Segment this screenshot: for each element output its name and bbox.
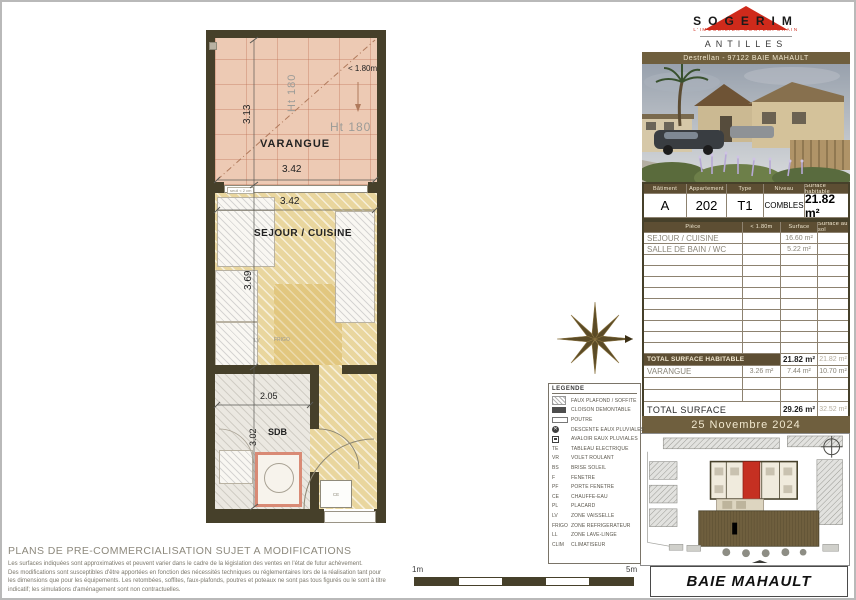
sejour-width-dim: 3.42 bbox=[280, 196, 299, 207]
legend-item: VRVOLET ROULANT bbox=[552, 454, 637, 464]
sdb-height-dim: 3.02 bbox=[248, 428, 258, 446]
empty-row bbox=[644, 266, 848, 277]
empty-row bbox=[644, 378, 848, 390]
downpipe-symbol-icon: ✕ bbox=[552, 426, 571, 433]
varangue-row: VARANGUE 3.26 m² 7.44 m² 10.70 m² bbox=[644, 366, 848, 378]
legend-item: CECHAUFFE-EAU bbox=[552, 492, 637, 502]
legend-item: AVALOIR EAUX PLUVIALES bbox=[552, 434, 637, 444]
unit-info-table: Bâtiment Appartement Type Niveau Surface… bbox=[642, 182, 850, 220]
hatch-symbol-icon bbox=[552, 396, 571, 405]
info-header-niveau: Niveau bbox=[764, 184, 805, 194]
site-plan-image bbox=[640, 433, 850, 566]
info-header-batiment: Bâtiment bbox=[644, 184, 687, 194]
rooms-header-lt180: < 1.80m bbox=[743, 222, 781, 233]
info-batiment: A bbox=[644, 194, 687, 218]
project-rendering-image bbox=[642, 64, 850, 182]
logo-region: ANTILLES bbox=[642, 39, 850, 49]
legend-title: LEGENDE bbox=[552, 386, 637, 394]
empty-row bbox=[644, 255, 848, 266]
empty-row bbox=[644, 321, 848, 332]
disclaimer-title: PLANS DE PRE-COMMERCIALISATION SUJET A M… bbox=[8, 545, 408, 557]
legend-item: FRIGOZONE REFRIGERATEUR bbox=[552, 521, 637, 531]
legend-item: PFPORTE FENETRE bbox=[552, 482, 637, 492]
frigo-zone-label: FRIGO bbox=[274, 337, 290, 343]
info-header-appartement: Appartement bbox=[687, 184, 727, 194]
varangue-height-dim: 3.13 bbox=[242, 105, 253, 124]
legend-item: LVZONE VAISSELLE bbox=[552, 511, 637, 521]
logo: SOGERIM L'IMMOBILIER CONTEMPORAIN ANTILL… bbox=[642, 4, 850, 52]
city-title: BAIE MAHAULT bbox=[650, 566, 848, 597]
empty-row bbox=[644, 390, 848, 402]
beam-symbol-icon bbox=[552, 417, 571, 423]
empty-row bbox=[644, 343, 848, 354]
scale-bar bbox=[414, 577, 634, 586]
legend-item: ✕DESCENTE EAUX PLUVIALES bbox=[552, 425, 637, 435]
info-niveau: COMBLES bbox=[764, 194, 805, 218]
empty-row bbox=[644, 277, 848, 288]
legend-item: FAUX PLAFOND / SOFFITE bbox=[552, 396, 637, 406]
disclaimer: PLANS DE PRE-COMMERCIALISATION SUJET A M… bbox=[8, 545, 408, 594]
rooms-header-surface: Surface bbox=[781, 222, 818, 233]
rooms-table: Pièce < 1.80m Surface Surface au sol SEJ… bbox=[642, 220, 850, 420]
drain-symbol-icon bbox=[552, 436, 571, 443]
legend-item: POUTRE bbox=[552, 415, 637, 425]
varangue-width-dim: 3.42 bbox=[282, 164, 301, 175]
info-header-type: Type bbox=[727, 184, 764, 194]
date-bar: 25 Novembre 2024 bbox=[642, 416, 850, 433]
sejour-room-label: SEJOUR / CUISINE bbox=[254, 228, 352, 239]
rooms-header-ausol: Surface au sol bbox=[818, 222, 848, 233]
varangue-height-label-1: Ht 180 bbox=[286, 74, 298, 112]
legend-item: BSBRISE SOLEIL bbox=[552, 463, 637, 473]
varangue-height-label-2: Ht 180 bbox=[330, 120, 371, 134]
lv-zone-label: LV bbox=[254, 338, 260, 344]
legend-item: LLZONE LAVE-LINGE bbox=[552, 530, 637, 540]
legend-item: CLOISON DEMONTABLE bbox=[552, 406, 637, 416]
floorplan-sheet: seuil < 2 cm CE bbox=[0, 0, 856, 600]
empty-row bbox=[644, 310, 848, 321]
rooms-header-piece: Pièce bbox=[644, 222, 743, 233]
varangue-room-label: VARANGUE bbox=[260, 138, 330, 150]
scale-right-label: 5m bbox=[626, 565, 637, 574]
sdb-room-label: SDB bbox=[268, 427, 287, 437]
room-row: SEJOUR / CUISINE 16.60 m² bbox=[644, 233, 848, 244]
legend-item: FFENETRE bbox=[552, 473, 637, 483]
logo-divider bbox=[700, 36, 792, 37]
varangue-low-height-label: < 1.80m bbox=[348, 64, 377, 73]
empty-row bbox=[644, 288, 848, 299]
info-header-surface: Surface habitable bbox=[805, 184, 848, 194]
total-habitable-row: TOTAL SURFACE HABITABLE 21.82 m² 21.82 m… bbox=[644, 354, 848, 366]
logo-company: SOGERIM bbox=[642, 14, 850, 28]
legend-item: PLPLACARD bbox=[552, 502, 637, 512]
empty-row bbox=[644, 332, 848, 343]
empty-row bbox=[644, 299, 848, 310]
address-bar: Destrellan - 97122 BAIE MAHAULT bbox=[642, 52, 850, 64]
legend-item: TETABLEAU ELECTRIQUE bbox=[552, 444, 637, 454]
legend-box: LEGENDE FAUX PLAFOND / SOFFITE CLOISON D… bbox=[548, 383, 641, 564]
compass-rose-icon bbox=[555, 300, 635, 376]
info-appartement: 202 bbox=[687, 194, 727, 218]
logo-tagline: L'IMMOBILIER CONTEMPORAIN bbox=[642, 27, 850, 32]
partition-symbol-icon bbox=[552, 407, 571, 413]
legend-item: CLIMCLIMATISEUR bbox=[552, 540, 637, 550]
room-row: SALLE DE BAIN / WC 5.22 m² bbox=[644, 244, 848, 255]
scale-left-label: 1m bbox=[412, 565, 423, 574]
info-type: T1 bbox=[727, 194, 764, 218]
sejour-height-dim: 3.69 bbox=[243, 271, 254, 290]
info-surface: 21.82 m² bbox=[805, 194, 848, 218]
sdb-width-dim: 2.05 bbox=[260, 391, 278, 401]
